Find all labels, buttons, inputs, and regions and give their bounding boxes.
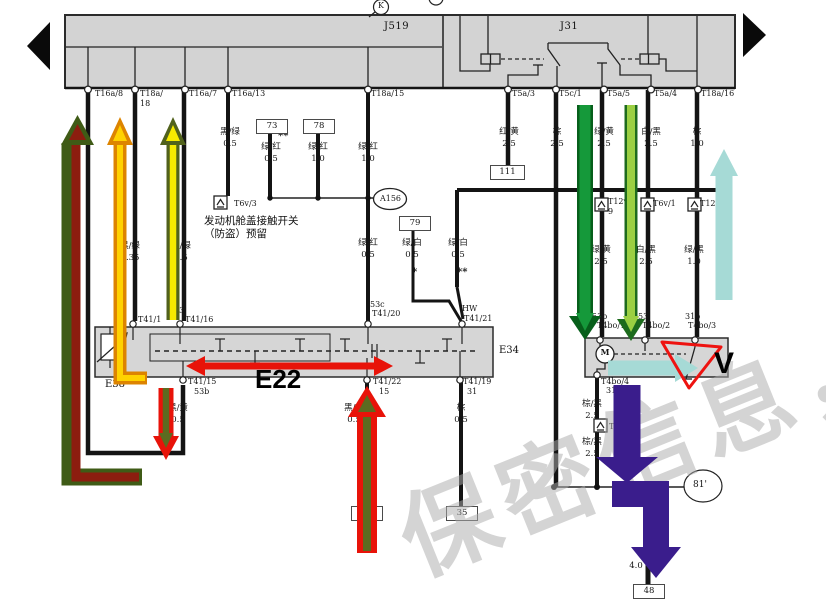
highlight-arrow-yellow-up [160, 117, 186, 320]
highlight-arrow-darkgreen-down [569, 105, 601, 340]
highlight-arrow-red-up-big [348, 386, 386, 553]
wiring-diagram: K J519 J31 T16a/8 T18a/ 18 T16a/7 T16a/1… [0, 0, 826, 606]
highlight-overlays [0, 0, 826, 606]
highlight-arrow-purple-elbow-down [612, 494, 681, 578]
v-annotation: V [714, 347, 734, 381]
highlight-arrow-lightgreen-down [617, 105, 645, 341]
highlight-arrow-cyan-up [710, 149, 738, 300]
highlight-arrow-maroon-up [61, 115, 142, 477]
highlight-arrow-red-down-small [153, 388, 179, 460]
highlight-arrow-orange-up [107, 117, 147, 378]
highlight-arrow-purple-down-1 [596, 385, 658, 483]
e22-annotation: E22 [255, 364, 301, 395]
